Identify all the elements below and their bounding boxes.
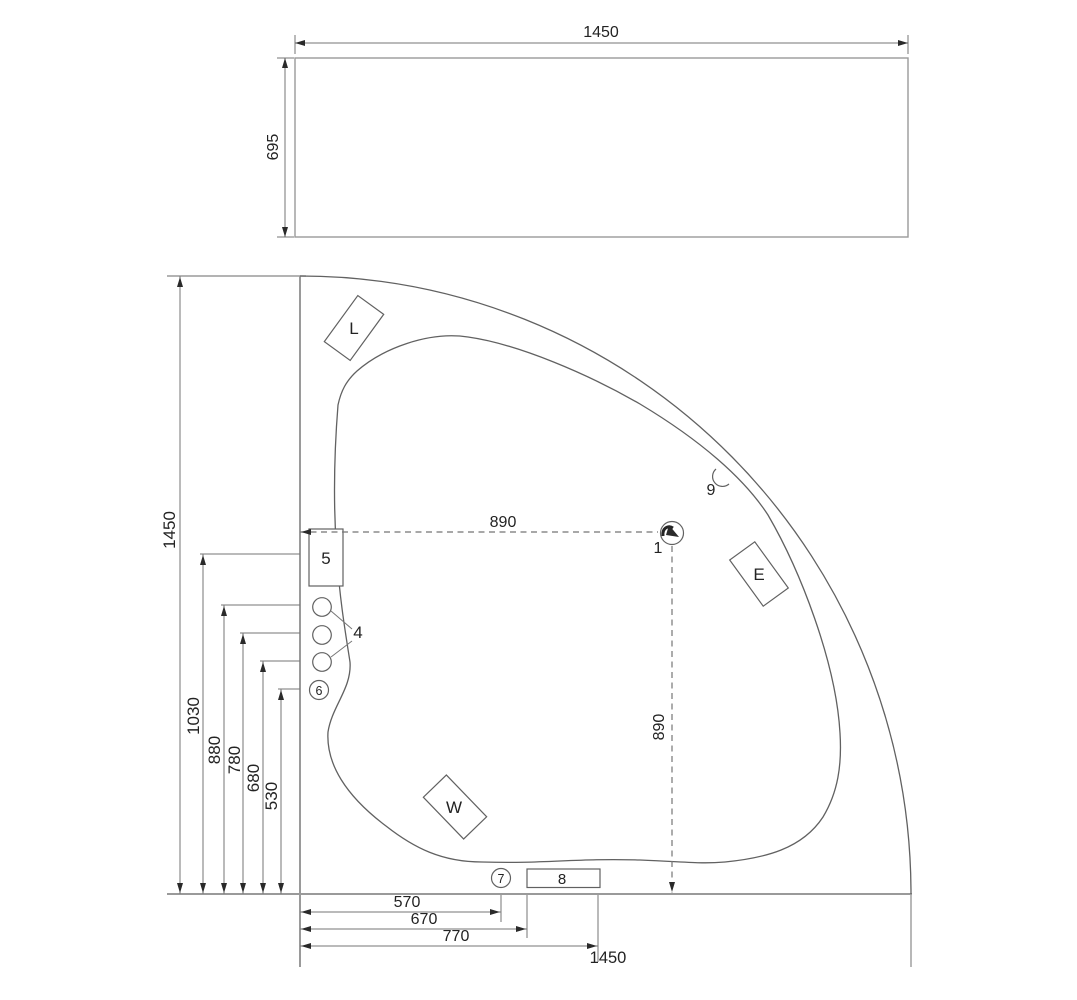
- rim-jet-2: [313, 626, 332, 645]
- bottom-dim-570: 570: [300, 894, 501, 922]
- drain-x-label: 890: [490, 514, 517, 531]
- fixture-W-label: W: [446, 798, 462, 817]
- callout-9-label: 9: [707, 482, 716, 499]
- bathtub-technical-drawing: 1450 695 9 1450 1030: [0, 0, 1077, 1000]
- callout-7-label: 7: [498, 872, 505, 886]
- plan-side-label: 1450: [160, 511, 179, 549]
- rim-jet-1: [313, 598, 332, 617]
- bottom-total-label: 1450: [590, 949, 627, 967]
- fixture-E-label: E: [753, 565, 764, 584]
- callout-1-label: 1: [654, 540, 663, 557]
- rim-dim-530: 530: [262, 689, 300, 894]
- arrow-down-icon: [282, 227, 288, 237]
- arrow-down-icon: [177, 883, 183, 893]
- rim-dim-1030-label: 1030: [184, 697, 203, 735]
- fixture-L-label: L: [349, 319, 358, 338]
- rim-dim-880-label: 880: [205, 736, 224, 764]
- arrow-down-icon: [669, 882, 675, 892]
- plan-view: 9 1450 1030 880 780: [160, 276, 912, 967]
- fixture-8-label: 8: [558, 871, 566, 888]
- rim-dim-530-label: 530: [262, 782, 281, 810]
- callout-6-label: 6: [316, 684, 323, 698]
- arrow-left-icon: [295, 40, 305, 46]
- rim-dim-880: 880: [205, 605, 300, 894]
- callout-4-leader-top: [331, 611, 352, 629]
- rim-dim-680: 680: [244, 661, 300, 894]
- drain-y-label: 890: [651, 714, 668, 741]
- arrow-up-icon: [177, 277, 183, 287]
- arrow-right-icon: [898, 40, 908, 46]
- arrow-up-icon: [282, 58, 288, 68]
- front-panel-view: 1450 695: [265, 24, 908, 237]
- rim-dim-780-label: 780: [225, 746, 244, 774]
- rim-jet-3: [313, 653, 332, 672]
- callout-4-label: 4: [353, 623, 362, 642]
- front-width-label: 1450: [583, 24, 619, 41]
- front-height-label: 695: [265, 134, 282, 161]
- fixture-5-label: 5: [321, 549, 330, 568]
- drawing-canvas: 1450 695 9 1450 1030: [0, 0, 1077, 1000]
- rim-dim-680-label: 680: [244, 764, 263, 792]
- tub-outer-edge: [300, 276, 911, 894]
- bottom-dim-570-label: 570: [394, 894, 421, 911]
- front-panel-outline: [295, 58, 908, 237]
- arrow-left-icon: [301, 529, 311, 535]
- bottom-dim-770-label: 770: [443, 928, 470, 945]
- bottom-dim-670-label: 670: [411, 911, 438, 928]
